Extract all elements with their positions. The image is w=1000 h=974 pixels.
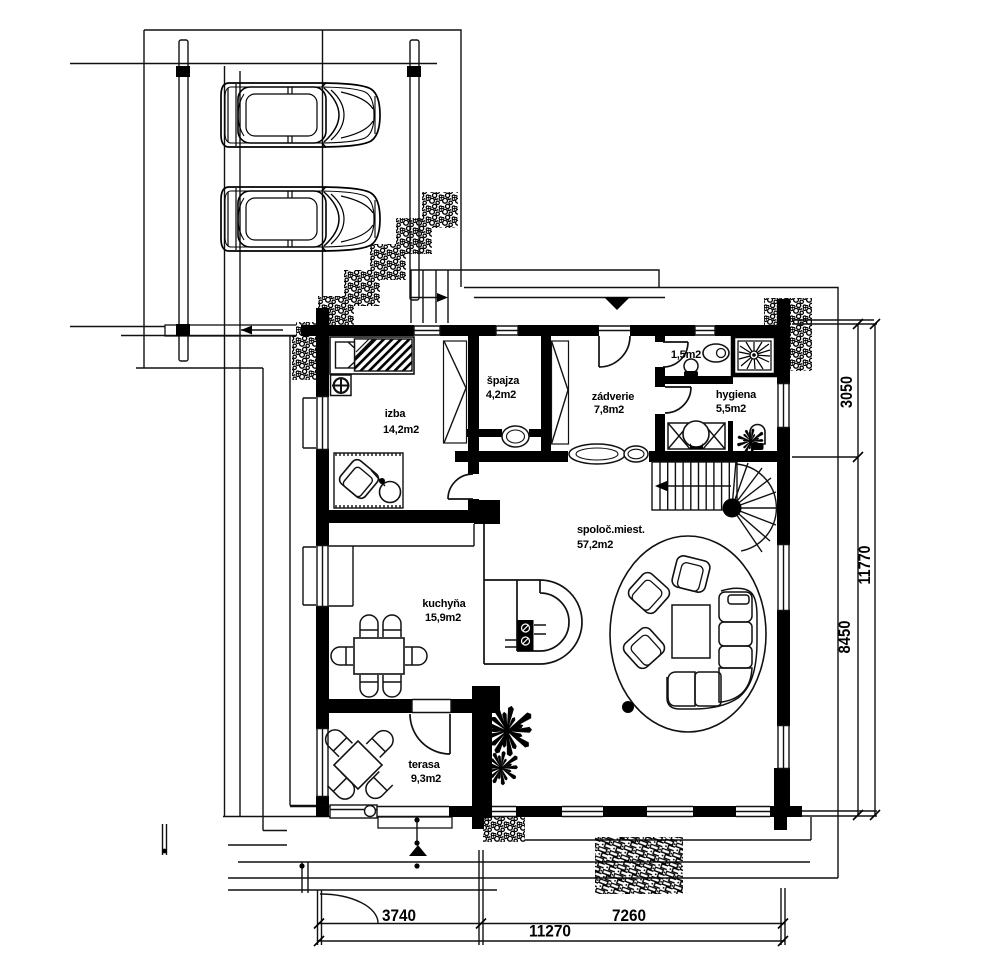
svg-text:57,2m2: 57,2m2 [577, 539, 613, 551]
svg-text:4,2m2: 4,2m2 [486, 389, 516, 401]
svg-text:8450: 8450 [835, 621, 854, 654]
svg-text:spoloč.miest.: spoloč.miest. [577, 524, 645, 536]
svg-text:izba: izba [385, 408, 407, 420]
svg-text:14,2m2: 14,2m2 [383, 424, 419, 436]
svg-text:terasa: terasa [408, 759, 440, 771]
svg-text:3740: 3740 [382, 906, 416, 925]
svg-text:špajza: špajza [487, 375, 521, 387]
svg-text:11270: 11270 [529, 922, 571, 941]
svg-text:5,5m2: 5,5m2 [716, 403, 746, 415]
svg-text:hygiena: hygiena [716, 389, 757, 401]
svg-text:3050: 3050 [837, 376, 856, 408]
svg-text:1,5m2: 1,5m2 [671, 349, 701, 361]
svg-text:11770: 11770 [855, 546, 874, 585]
svg-text:9,3m2: 9,3m2 [411, 773, 441, 785]
svg-text:7,8m2: 7,8m2 [594, 404, 624, 416]
svg-text:zádverie: zádverie [592, 391, 635, 403]
svg-text:7260: 7260 [612, 906, 646, 925]
svg-text:15,9m2: 15,9m2 [425, 612, 461, 624]
svg-text:kuchyňa: kuchyňa [422, 598, 466, 610]
